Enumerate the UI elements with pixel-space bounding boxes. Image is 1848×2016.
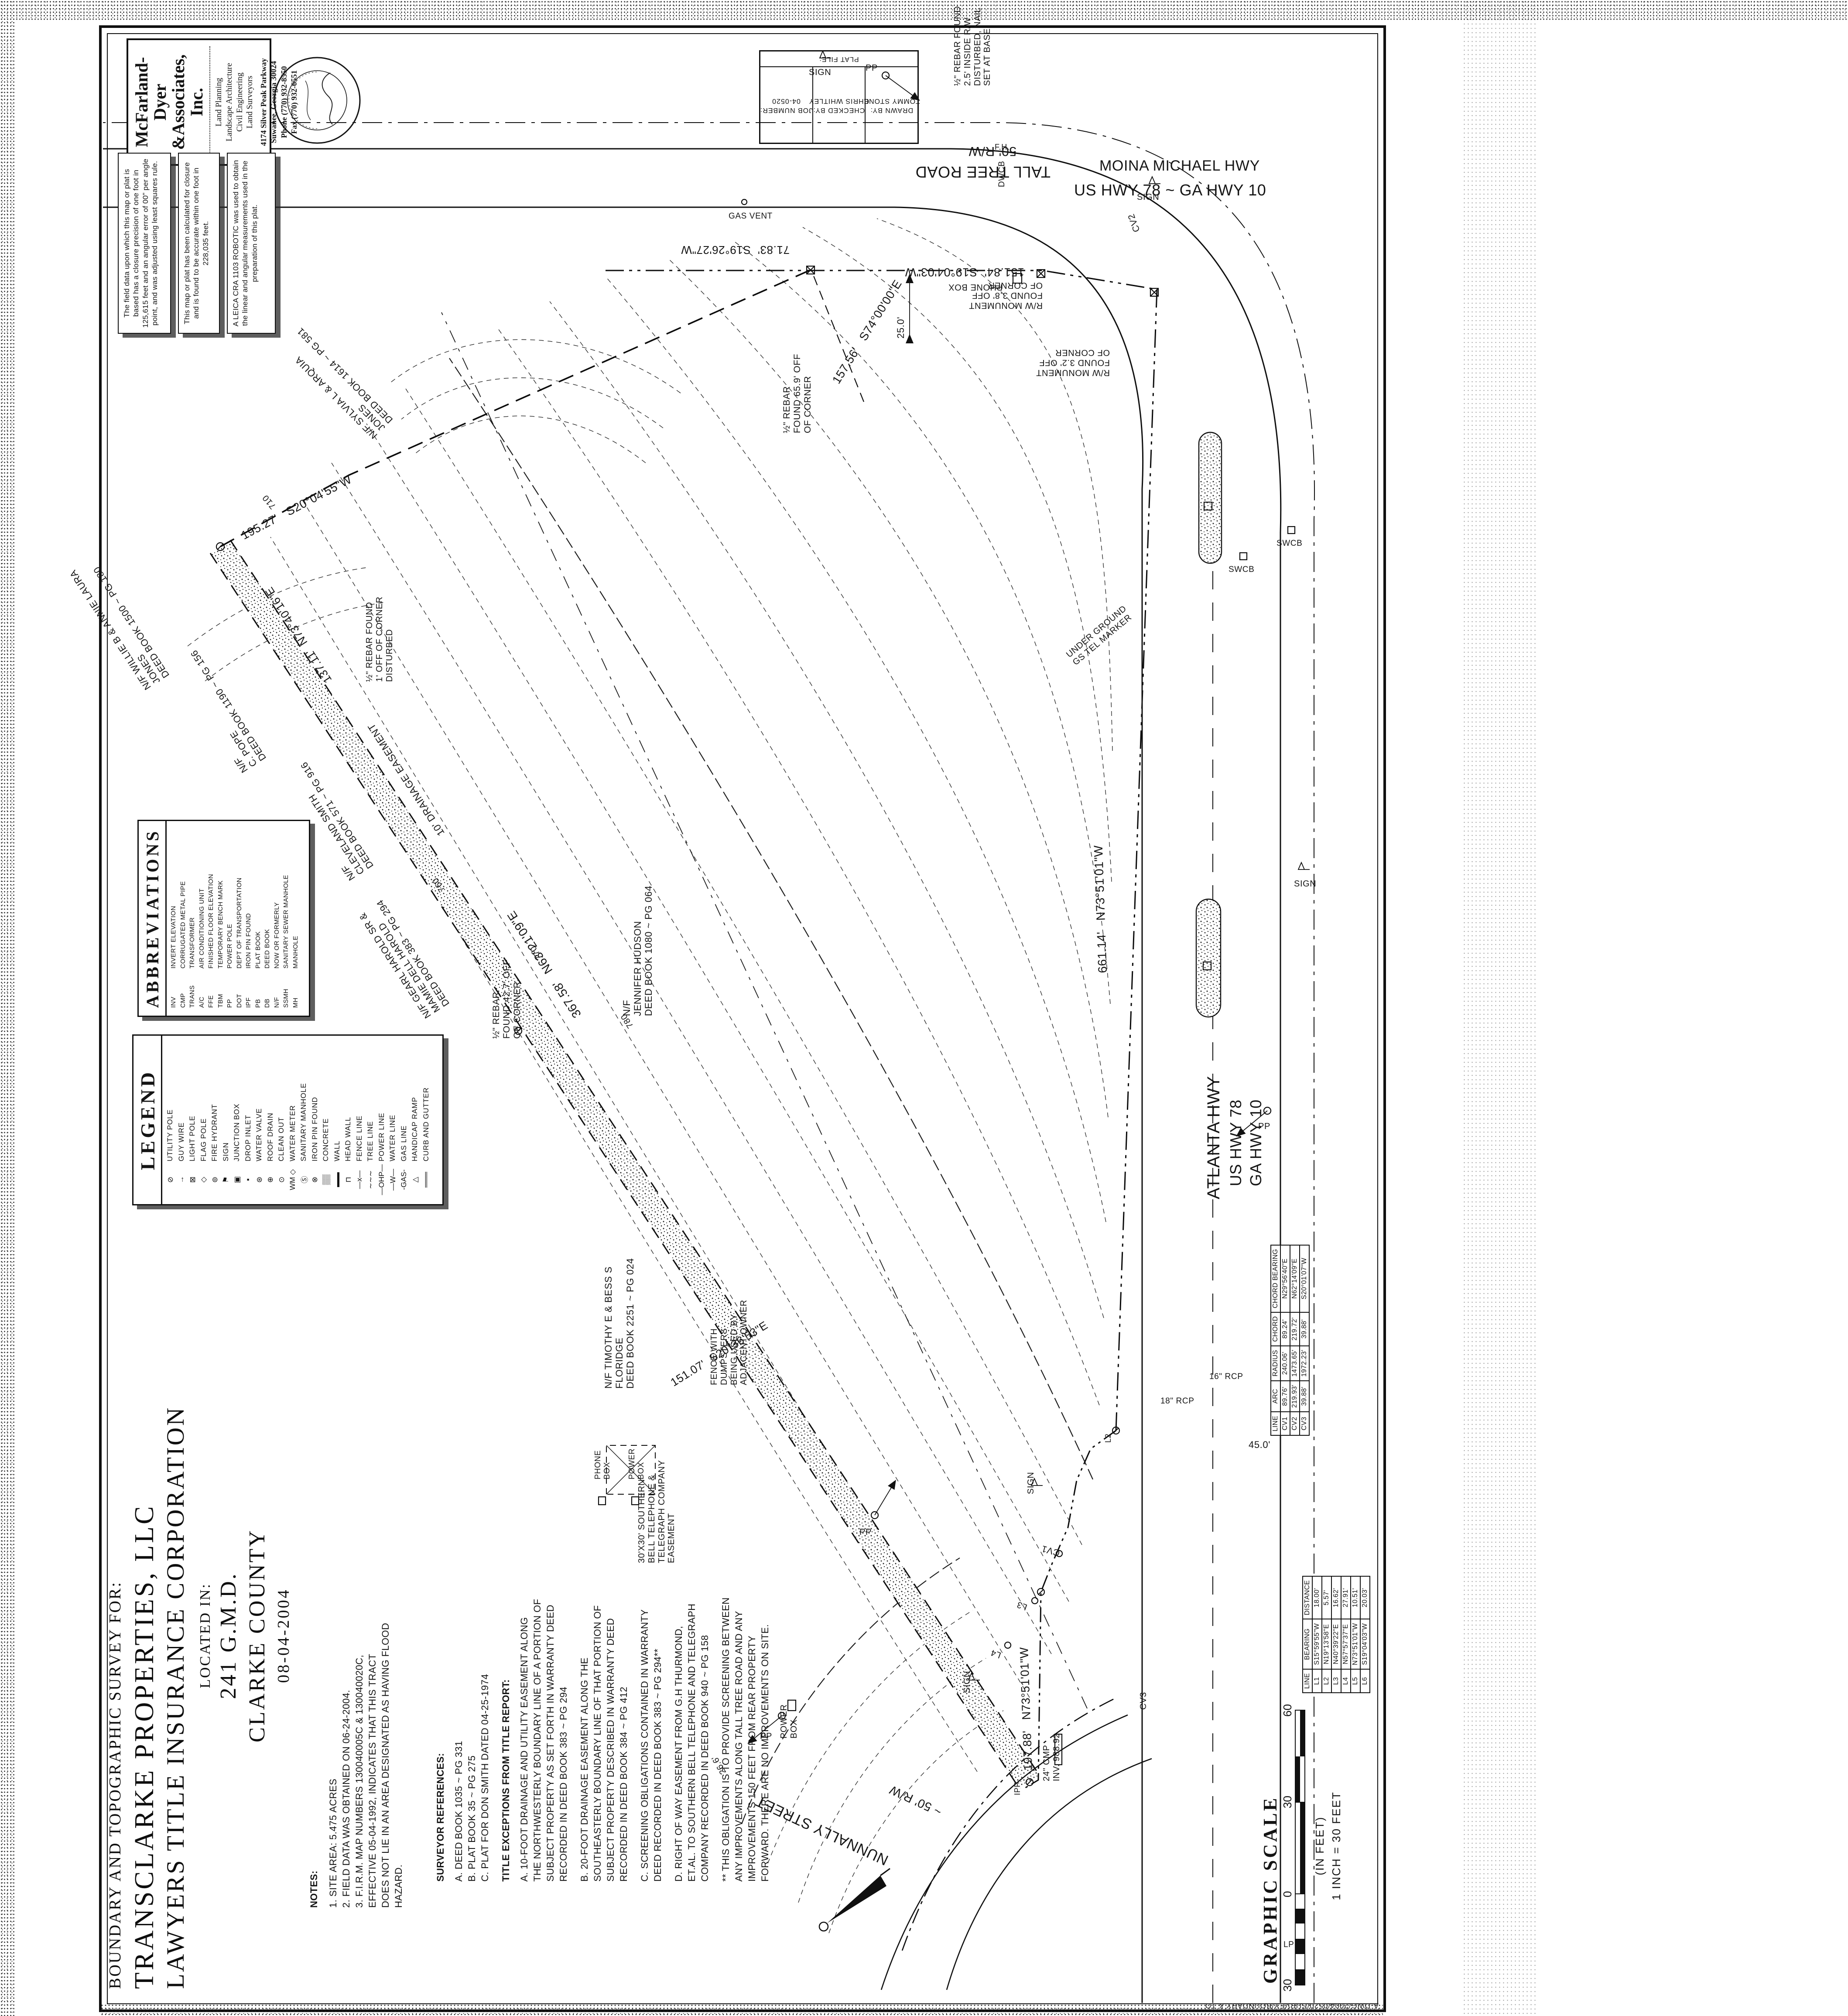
curve-table-header: CHORD BEARING: [1271, 1245, 1280, 1312]
legend-item: ▒▒ CONCRETE: [321, 1036, 332, 1204]
curve-radius: 1473.65': [1290, 1346, 1300, 1381]
line-bearing: N40°39'22"E: [1331, 1619, 1341, 1669]
line-bearing: N73°51'01"W: [1351, 1619, 1360, 1669]
legend-item: ═══ CURB AND GUTTER: [421, 1036, 432, 1204]
plat-file-label: PLAT FILE:: [819, 55, 859, 63]
map-label: N/F JENNIFER HUDSON DEED BOOK 1080 ~ PG …: [621, 886, 654, 1016]
legend-symbol: ▣: [233, 1161, 242, 1198]
line-bearing: N57°57'37"E: [1341, 1619, 1351, 1669]
line-table-body: L1 S15°59'55"W 18.00' L2 N19°13'58"E 5.5…: [1312, 1576, 1370, 1693]
line-bearing: N19°13'58"E: [1322, 1619, 1331, 1669]
legend-label: GUY WIRE: [178, 1122, 186, 1161]
curve-chord-bearing: N62°14'09"E: [1290, 1245, 1300, 1312]
title-exception-line: [630, 1597, 638, 1882]
curve-arc: 89.76': [1280, 1381, 1290, 1412]
legend-label: CURB AND GUTTER: [422, 1087, 431, 1161]
legend-label: FENCE LINE: [356, 1116, 364, 1161]
map-label: SIGN: [962, 1671, 972, 1693]
map-label: LP: [1283, 1940, 1294, 1950]
abbreviation-item: MH MANHOLE: [292, 821, 302, 1016]
map-label: PHONE BOX: [593, 1450, 611, 1479]
curve-table-body: CV1 89.76' 240.06' 89.24' N29°56'40"E CV…: [1280, 1245, 1309, 1435]
map-label: DWCB: [997, 161, 1007, 187]
title-exception-line: RECORDED IN DEED BOOK 383 ~ PG 294: [557, 1597, 570, 1882]
line-table-row: L3 N40°39'22"E 16.62': [1331, 1576, 1341, 1693]
abbreviation-item: CMP CORRUGATED METAL PIPE: [180, 821, 189, 1016]
abbreviation-meaning: FINISHED FLOOR ELEVATION: [208, 874, 217, 969]
line-id: L5: [1351, 1669, 1360, 1693]
company-address-line: 4174 Silver Peak Parkway: [259, 40, 269, 164]
map-label: SWCB: [1229, 565, 1254, 575]
legend-item: ⊕ ROOF DRAIN: [265, 1036, 277, 1204]
map-label: ½" REBAR FOUND 42.7' OFF OF CORNER: [491, 959, 523, 1039]
note-line: EFFECTIVE 05-04-1992, INDICATES THAT THI…: [366, 1623, 379, 1908]
legend-label: WATER LINE: [389, 1115, 397, 1161]
company-name-line1: McFarland-Dyer: [133, 40, 169, 164]
file-path-stamp: A-DWG/2004/0520/SURVEY/BOUNDARY & TO: [1205, 2001, 1379, 2010]
legend-item: ◇ FLAG POLE: [198, 1036, 210, 1204]
curve-table-row: CV3 39.88' 1972.23' 39.88' S20°01'07"W: [1300, 1245, 1309, 1435]
legend-symbol: ═══: [422, 1161, 431, 1198]
graphic-scale-ratio: 1 INCH = 30 FEET: [1330, 1706, 1343, 1985]
legend-label: ROOF DRAIN: [267, 1112, 275, 1161]
line-id: L2: [1322, 1669, 1331, 1693]
legend-symbol: ⊙: [277, 1161, 286, 1198]
power-pole-symbols: [778, 72, 1271, 1719]
legend-label: FIRE HYDRANT: [211, 1104, 219, 1161]
abbreviations-title: ABBREVIATIONS: [139, 821, 167, 1016]
line-distance: 10.51': [1351, 1576, 1360, 1619]
surveyor-reference-line: A. DEED BOOK 1035 ~ PG 331: [452, 1674, 465, 1882]
map-label: 30'X30' SOUTHERN BELL TELEPHONE & TELEGR…: [637, 1460, 677, 1563]
checked-by-value: CHRIS WHITLEY: [809, 97, 869, 105]
map-label: 151.84' S19°04'03"W: [905, 265, 1024, 279]
certification-note: This map or plat has been calculated for…: [178, 153, 220, 334]
abbreviation-code: A/C: [198, 969, 208, 1008]
curve-radius: 1972.23': [1300, 1346, 1309, 1381]
legend-label: WATER METER: [289, 1105, 297, 1161]
job-number-value: 04-0520: [772, 97, 801, 105]
abbreviation-item: TBM TEMPORARY BENCH MARK: [217, 821, 227, 1016]
abbreviation-code: PP: [226, 969, 236, 1008]
north-arrow: [819, 1869, 890, 1931]
map-label: CV3: [1139, 1692, 1149, 1710]
abbreviations-box: ABBREVIATIONS INV INVERT ELEVATION CMP C…: [137, 820, 310, 1017]
title-date: 08-04-2004: [274, 1282, 293, 1989]
abbreviation-meaning: POWER POLE: [226, 924, 236, 969]
title-exception-line: DEED RECORDED IN DEED BOOK 383 ~ PG 294*…: [651, 1597, 664, 1882]
line-distance: 16.62': [1331, 1576, 1341, 1619]
map-label: L2: [1104, 1434, 1113, 1443]
surveyor-references-lines: A. DEED BOOK 1035 ~ PG 331B. PLAT BOOK 3…: [452, 1674, 492, 1882]
legend-label: SANITARY MANHOLE: [300, 1083, 308, 1161]
legend-symbol: WM ◇: [288, 1161, 297, 1198]
abbreviation-code: DOT: [236, 969, 246, 1008]
legend-symbol: ∼∼∼: [366, 1161, 375, 1198]
title-client: TRANSCLARKE PROPERTIES, LLC: [129, 1504, 160, 1989]
abbreviation-meaning: IRON PIN FOUND: [245, 913, 255, 969]
title-exception-line: ANY IMPROVEMENTS ALONG TALL TREE ROAD AN…: [732, 1597, 746, 1882]
map-label: 16" RCP: [1209, 1372, 1243, 1382]
legend-symbol: ⊘: [166, 1161, 175, 1198]
graphic-scale-units: (IN FEET): [1313, 1706, 1327, 1985]
map-label: N/F TIMOTHY E & BESS S FLORIDGE DEED BOO…: [603, 1258, 636, 1389]
curve-chord: 39.88': [1300, 1312, 1309, 1346]
abbreviation-item: INV INVERT ELEVATION: [170, 821, 180, 1016]
abbreviation-code: CMP: [180, 969, 189, 1008]
abbreviation-meaning: DEPT OF TRANSPORTATION: [236, 877, 246, 969]
legend-items: ⊘ UTILITY POLE → GUY WIRE ⊠ LIGHT POLE ◇…: [162, 1036, 432, 1204]
abbreviation-item: DOT DEPT OF TRANSPORTATION: [236, 821, 246, 1016]
curve-arc: 219.93': [1290, 1381, 1300, 1412]
notes-heading: NOTES:: [308, 1623, 321, 1908]
line-table-header-row: LINEBEARINGDISTANCE: [1303, 1576, 1312, 1693]
plat-file-cell: PLAT FILE:: [760, 51, 917, 67]
title-exception-line: C. SCREENING OBLIGATIONS CONTAINED IN WA…: [638, 1597, 651, 1882]
line-table-row: L6 S19°04'03"W 20.03': [1360, 1576, 1370, 1693]
map-label: 18" RCP: [1160, 1396, 1194, 1406]
notes-lines: 1. SITE AREA: 5.475 ACRES2. FIELD DATA W…: [327, 1623, 405, 1908]
abbreviation-meaning: TRANSFORMER: [189, 917, 198, 969]
certification-note: The field data upon which this map or pl…: [118, 153, 171, 334]
map-label: TALL TREE ROAD: [915, 163, 1051, 181]
company-service-line: Land Surveyors: [245, 40, 255, 164]
legend-symbol: △: [411, 1161, 420, 1198]
legend-symbol: —W—: [389, 1161, 397, 1198]
curve-table-row: CV1 89.76' 240.06' 89.24' N29°56'40"E: [1280, 1245, 1290, 1435]
abbreviation-item: PP POWER POLE: [226, 821, 236, 1016]
abbreviation-code: DB: [264, 969, 274, 1008]
abbreviation-item: IPF IRON PIN FOUND: [245, 821, 255, 1016]
legend-item: —x— FENCE LINE: [354, 1036, 366, 1204]
graphic-scale-tick-0: 0: [1281, 1891, 1294, 1897]
abbreviations-items: INV INVERT ELEVATION CMP CORRUGATED META…: [167, 821, 301, 1016]
drawn-by-cell: DRAWN BY: TOMMY STONE: [866, 67, 917, 143]
map-label: ATLANTA HWY: [1204, 1076, 1224, 1199]
title-exception-line: A. 10-FOOT DRAINAGE AND UTILITY EASEMENT…: [518, 1597, 531, 1882]
company-services: Land PlanningLandscape ArchitectureCivil…: [214, 40, 255, 164]
map-label: 25.0': [895, 317, 906, 339]
map-label: SIGN: [1137, 192, 1159, 202]
abbreviation-item: DB DEED BOOK: [264, 821, 274, 1016]
legend-item: —OHP— POWER LINE: [376, 1036, 388, 1204]
line-bearing: S15°59'55"W: [1312, 1619, 1322, 1669]
legend-label: CLEAN OUT: [277, 1117, 286, 1161]
title-exception-line: COMPANY RECORDED IN DEED BOOK 940 ~ PG 1…: [698, 1597, 712, 1882]
checked-by-cell: CHECKED BY: CHRIS WHITLEY: [813, 67, 866, 143]
title-exception-line: [570, 1597, 578, 1882]
company-service-line: Landscape Architecture: [224, 40, 235, 164]
title-exceptions-lines: A. 10-FOOT DRAINAGE AND UTILITY EASEMENT…: [518, 1597, 772, 1882]
surveyor-references-heading: SURVEYOR REFERENCES:: [434, 1674, 447, 1882]
curve-table-header: LINE: [1271, 1412, 1280, 1435]
drawn-by-value: TOMMY STONE: [863, 97, 920, 105]
company-service-line: Civil Engineering: [235, 40, 245, 164]
map-label: PP: [866, 63, 878, 73]
map-label: R/W MONUMENT FOUND 3.2' OFF OF CORNER: [1036, 348, 1110, 377]
legend-symbol: —OHP—: [377, 1161, 386, 1198]
legend-label: SIGN: [222, 1142, 230, 1161]
legend-label: DROP INLET: [244, 1115, 253, 1161]
curve-chord: 219.72': [1290, 1312, 1300, 1346]
title-exception-line: SUBJECT PROPERTY DESCRIBED IN WARRANTY D…: [604, 1597, 617, 1882]
title-insurer: LAWYERS TITLE INSURANCE CORPORATION: [161, 1406, 190, 1989]
map-label: 45.0': [1249, 1439, 1270, 1450]
map-label: POWER BOX: [779, 1704, 799, 1739]
company-name-line2: &Associates, Inc.: [169, 40, 206, 164]
curve-table-header: ARC: [1271, 1381, 1280, 1412]
map-label: ½" REBAR FOUND 65.9' OFF OF CORNER: [782, 354, 813, 433]
drawn-by-label: DRAWN BY:: [870, 106, 913, 113]
abbreviation-meaning: AIR CONDITIONING UNIT: [198, 888, 208, 969]
curve-id: CV3: [1300, 1412, 1309, 1435]
title-county: CLARKE COUNTY: [244, 1282, 270, 1989]
abbreviation-meaning: SANITARY SEWER MANHOLE: [283, 875, 292, 969]
abbreviation-code: INV: [170, 969, 180, 1008]
abbreviation-item: SSMH SANITARY SEWER MANHOLE: [283, 821, 292, 1016]
map-label: PHONE BOX: [948, 282, 1003, 292]
abbreviation-code: FFE: [208, 969, 217, 1008]
title-exceptions-section: TITLE EXCEPTIONS FROM TITLE REPORT: A. 1…: [500, 1597, 772, 1882]
map-label: ½" REBAR FOUND 2.5' INSIDE R/W DISTURBED…: [953, 6, 992, 86]
legend-label: WATER VALVE: [255, 1108, 264, 1161]
curve-table-header: CHORD: [1271, 1312, 1280, 1346]
abbreviation-meaning: NOW OR FORMERLY: [274, 902, 283, 969]
line-table-row: L4 N57°57'37"E 27.91': [1341, 1576, 1351, 1693]
map-label: 71.83' S19°26'27"W: [681, 243, 790, 256]
abbreviation-meaning: MANHOLE: [292, 936, 302, 969]
abbreviation-meaning: TEMPORARY BENCH MARK: [217, 880, 227, 969]
note-line: HAZARD.: [392, 1623, 405, 1908]
legend-symbol: ⚑: [222, 1161, 230, 1198]
title-exception-line: D. RIGHT OF WAY EASEMENT FROM G.H THURMO…: [672, 1597, 685, 1882]
plat-sheet: BOUNDARY AND TOPOGRAPHIC SURVEY FOR: TRA…: [0, 0, 1848, 2016]
line-id: L4: [1341, 1669, 1351, 1693]
legend-item: ⊛ WATER VALVE: [254, 1036, 265, 1204]
checked-by-label: CHECKED BY:: [813, 106, 865, 113]
job-number-cell: JOB NUMBER: 04-0520: [760, 67, 813, 143]
legend-item: Ⓢ SANITARY MANHOLE: [298, 1036, 310, 1204]
map-label: US HWY 78: [1227, 1099, 1245, 1186]
company-service-line: Land Planning: [214, 40, 224, 164]
curve-chord-bearing: N29°56'40"E: [1280, 1245, 1290, 1312]
note-line: 2. FIELD DATA WAS OBTAINED ON 06-24-2004…: [340, 1623, 353, 1908]
title-exception-line: THE NORTHWESTERLY BOUNDARY LINE OF A POR…: [531, 1597, 544, 1882]
legend-symbol: -GAS-: [400, 1161, 408, 1198]
legend-item: ▬▬ WALL: [332, 1036, 343, 1204]
map-label: FENCE WITH DUMPSTERS BEING USED BY ADJAC…: [709, 1300, 749, 1385]
line-table-row: L5 N73°51'01"W 10.51': [1351, 1576, 1360, 1693]
note-line: 1. SITE AREA: 5.475 ACRES: [327, 1623, 340, 1908]
line-id: L6: [1360, 1669, 1370, 1693]
title-exception-line: ET.AL. TO SOUTHERN BELL TELEPHONE AND TE…: [685, 1597, 698, 1882]
legend-label: WALL: [333, 1140, 342, 1161]
curve-radius: 240.06': [1280, 1346, 1290, 1381]
legend-label: TREE LINE: [366, 1121, 375, 1161]
legend-label: FLAG POLE: [200, 1118, 208, 1161]
line-id: L3: [1331, 1669, 1341, 1693]
line-distance: 5.57': [1322, 1576, 1331, 1619]
line-bearing: S19°04'03"W: [1360, 1619, 1370, 1669]
legend-label: UTILITY POLE: [166, 1109, 175, 1161]
legend-item: ⊚ FIRE HYDRANT: [209, 1036, 221, 1204]
legend-item: ⊗ IRON PIN FOUND: [310, 1036, 321, 1204]
map-label: SWCB: [1276, 539, 1302, 548]
map-label: 24" CMP INV. 988.92: [1042, 1733, 1062, 1781]
title-exception-line: SUBJECT PROPERTY AS SET FORTH IN WARRANT…: [544, 1597, 557, 1882]
line-distance: 20.03': [1360, 1576, 1370, 1619]
legend-box: LEGEND ⊘ UTILITY POLE → GUY WIRE ⊠ LIGHT…: [132, 1034, 444, 1205]
legend-symbol: ▒▒: [322, 1161, 331, 1198]
line-table-header: LINE: [1303, 1669, 1312, 1693]
legend-item: WM ◇ WATER METER: [287, 1036, 299, 1204]
abbreviation-code: MH: [292, 969, 302, 1008]
abbreviation-meaning: CORRUGATED METAL PIPE: [180, 881, 189, 969]
abbreviation-code: IPF: [245, 969, 255, 1008]
abbreviation-meaning: DEED BOOK: [264, 929, 274, 969]
line-distance: 18.00': [1312, 1576, 1322, 1619]
legend-item: → GUY WIRE: [176, 1036, 188, 1204]
curve-chord-bearing: S20°01'07"W: [1300, 1245, 1309, 1312]
map-label: GA HWY 10: [1247, 1099, 1265, 1186]
map-label: F.H.: [995, 143, 1010, 152]
graphic-scale-bar: [1295, 1710, 1305, 1985]
map-label: SIGN: [1294, 879, 1316, 889]
title-exception-line: [664, 1597, 672, 1882]
curve-id: CV1: [1280, 1412, 1290, 1435]
company-divider: [209, 46, 210, 158]
company-box: McFarland-Dyer &Associates, Inc. Land Pl…: [127, 38, 271, 166]
abbreviation-code: SSMH: [283, 969, 292, 1008]
curve-arc: 39.88': [1300, 1381, 1309, 1412]
legend-item: ▣ JUNCTION BOX: [232, 1036, 243, 1204]
surveyor-references-section: SURVEYOR REFERENCES: A. DEED BOOK 1035 ~…: [434, 1674, 492, 1882]
job-info-table: JOB NUMBER: 04-0520 CHECKED BY: CHRIS WH…: [759, 50, 919, 144]
legend-symbol: ⊗: [311, 1161, 319, 1198]
legend-item: ∼∼∼ TREE LINE: [365, 1036, 376, 1204]
curve-id: CV2: [1290, 1412, 1300, 1435]
curve-table: LINEARCRADIUSCHORDCHORD BEARING CV1 89.7…: [1270, 1245, 1310, 1436]
abbreviation-meaning: PLAT BOOK: [255, 931, 264, 969]
title-survey-type: BOUNDARY AND TOPOGRAPHIC SURVEY FOR:: [106, 1581, 125, 1989]
map-label: US HWY 78 ~ GA HWY 10: [1074, 181, 1266, 199]
title-exception-line: B. 20-FOOT DRAINAGE EASEMENT ALONG THE: [578, 1597, 591, 1882]
abbreviation-meaning: INVERT ELEVATION: [170, 906, 180, 969]
legend-item: ⊙ CLEAN OUT: [276, 1036, 287, 1204]
note-line: 3. F.I.R.M. MAP NUMBERS 130040005C & 130…: [353, 1623, 366, 1908]
curve-table-header: RADIUS: [1271, 1346, 1280, 1381]
abbreviation-code: PB: [255, 969, 264, 1008]
title-exception-line: RECORDED IN DEED BOOK 384 ~ PG 412: [617, 1597, 630, 1882]
line-table: LINEBEARINGDISTANCE L1 S15°59'55"W 18.00…: [1302, 1576, 1370, 1693]
abbreviation-code: TRANS: [189, 969, 198, 1008]
abbreviation-code: N/F: [274, 969, 283, 1008]
legend-item: ▪ DROP INLET: [243, 1036, 254, 1204]
curve-table-row: CV2 219.93' 1473.65' 219.72' N62°14'09"E: [1290, 1245, 1300, 1435]
map-label: SIGN: [809, 68, 831, 78]
note-line: DOES NOT LIE IN AN AREA DESIGNATED AS HA…: [379, 1623, 392, 1908]
legend-symbol: ⊠: [188, 1161, 197, 1198]
legend-label: HEAD WALL: [344, 1117, 352, 1161]
legend-label: POWER LINE: [378, 1112, 386, 1161]
legend-label: CONCRETE: [322, 1118, 330, 1161]
title-exception-line: IMPROVEMENTS 150 FEET FROM REAR PROPERTY: [746, 1597, 759, 1882]
legend-item: ⊘ UTILITY POLE: [165, 1036, 176, 1204]
graphic-scale-title: GRAPHIC SCALE: [1259, 1796, 1281, 1984]
legend-label: IRON PIN FOUND: [311, 1097, 319, 1161]
legend-symbol: ⊕: [266, 1161, 275, 1198]
surveyor-reference-line: B. PLAT BOOK 35 ~ PG 275: [465, 1674, 479, 1882]
scanned-page: BOUNDARY AND TOPOGRAPHIC SURVEY FOR: TRA…: [0, 0, 1848, 2016]
map-label: IPF: [1013, 1782, 1022, 1795]
legend-symbol: ▪: [244, 1161, 253, 1198]
map-label: GAS VENT: [729, 212, 773, 221]
legend-label: JUNCTION BOX: [233, 1104, 241, 1161]
line-table-row: L2 N19°13'58"E 5.57': [1322, 1576, 1331, 1693]
graphic-scale-tick-30L: 30: [1281, 1979, 1294, 1992]
curve-table-header-row: LINEARCRADIUSCHORDCHORD BEARING: [1271, 1245, 1280, 1435]
abbreviation-item: TRANS TRANSFORMER: [189, 821, 198, 1016]
map-label: PP: [859, 1527, 872, 1537]
line-table-row: L1 S15°59'55"W 18.00': [1312, 1576, 1322, 1693]
graphic-scale-tick-30R: 30: [1281, 1796, 1294, 1808]
notes-section: NOTES: 1. SITE AREA: 5.475 ACRES2. FIELD…: [308, 1623, 405, 1908]
abbreviation-item: FFE FINISHED FLOOR ELEVATION: [208, 821, 217, 1016]
abbreviation-item: PB PLAT BOOK: [255, 821, 264, 1016]
job-number-label: JOB NUMBER:: [760, 106, 812, 113]
curve-chord: 89.24': [1280, 1312, 1290, 1346]
surveyor-seal: [271, 55, 363, 146]
abbreviation-item: A/C AIR CONDITIONING UNIT: [198, 821, 208, 1016]
map-label: MOINA MICHAEL HWY: [1099, 157, 1260, 175]
certification-note: A LEICA CRA 1103 ROBOTIC was used to obt…: [227, 153, 276, 334]
line-distance: 27.91': [1341, 1576, 1351, 1619]
legend-item: —W— WATER LINE: [387, 1036, 399, 1204]
line-table-header: BEARING: [1303, 1619, 1312, 1669]
legend-label: LIGHT POLE: [188, 1116, 197, 1161]
legend-item: ⚑ SIGN: [221, 1036, 232, 1204]
title-exception-line: SOUTHEASTERLY BOUNDARY LINE OF THAT PORT…: [591, 1597, 604, 1882]
surveyor-reference-line: C. PLAT FOR DON SMITH DATED 04-25-1974: [479, 1674, 492, 1882]
title-exceptions-heading: TITLE EXCEPTIONS FROM TITLE REPORT:: [500, 1597, 513, 1882]
legend-symbol: ⊚: [211, 1161, 219, 1198]
legend-title: LEGEND: [133, 1036, 162, 1204]
legend-symbol: Ⓢ: [298, 1161, 309, 1198]
abbreviation-code: TBM: [217, 969, 227, 1008]
legend-item: ⊓ HEAD WALL: [343, 1036, 354, 1204]
line-table-header: DISTANCE: [1303, 1576, 1312, 1619]
abbreviation-item: N/F NOW OR FORMERLY: [274, 821, 283, 1016]
legend-symbol: ⊛: [255, 1161, 264, 1198]
legend-symbol: ⊓: [344, 1161, 353, 1198]
map-label: PP: [1258, 1122, 1270, 1132]
legend-label: HANDICAP RAMP: [411, 1097, 419, 1161]
legend-item: △ HANDICAP RAMP: [410, 1036, 421, 1204]
graphic-scale-tick-60: 60: [1281, 1704, 1294, 1717]
map-label: PP: [760, 1732, 772, 1742]
utility-box-symbols: [599, 199, 1295, 1765]
map-label: SIGN: [1026, 1472, 1036, 1494]
line-id: L1: [1312, 1669, 1322, 1693]
title-gmd: 241 G.M.D.: [216, 1282, 241, 1989]
legend-label: GAS LINE: [400, 1125, 408, 1161]
legend-symbol: —x—: [355, 1161, 364, 1198]
legend-item: ⊠ LIGHT POLE: [187, 1036, 198, 1204]
title-exception-line: ** THIS OBLIGATION IS TO PROVIDE SCREENI…: [719, 1597, 732, 1882]
legend-symbol: →: [177, 1161, 186, 1198]
title-located-in: LOCATED IN:: [197, 1282, 214, 1989]
legend-symbol: ◇: [199, 1161, 208, 1198]
